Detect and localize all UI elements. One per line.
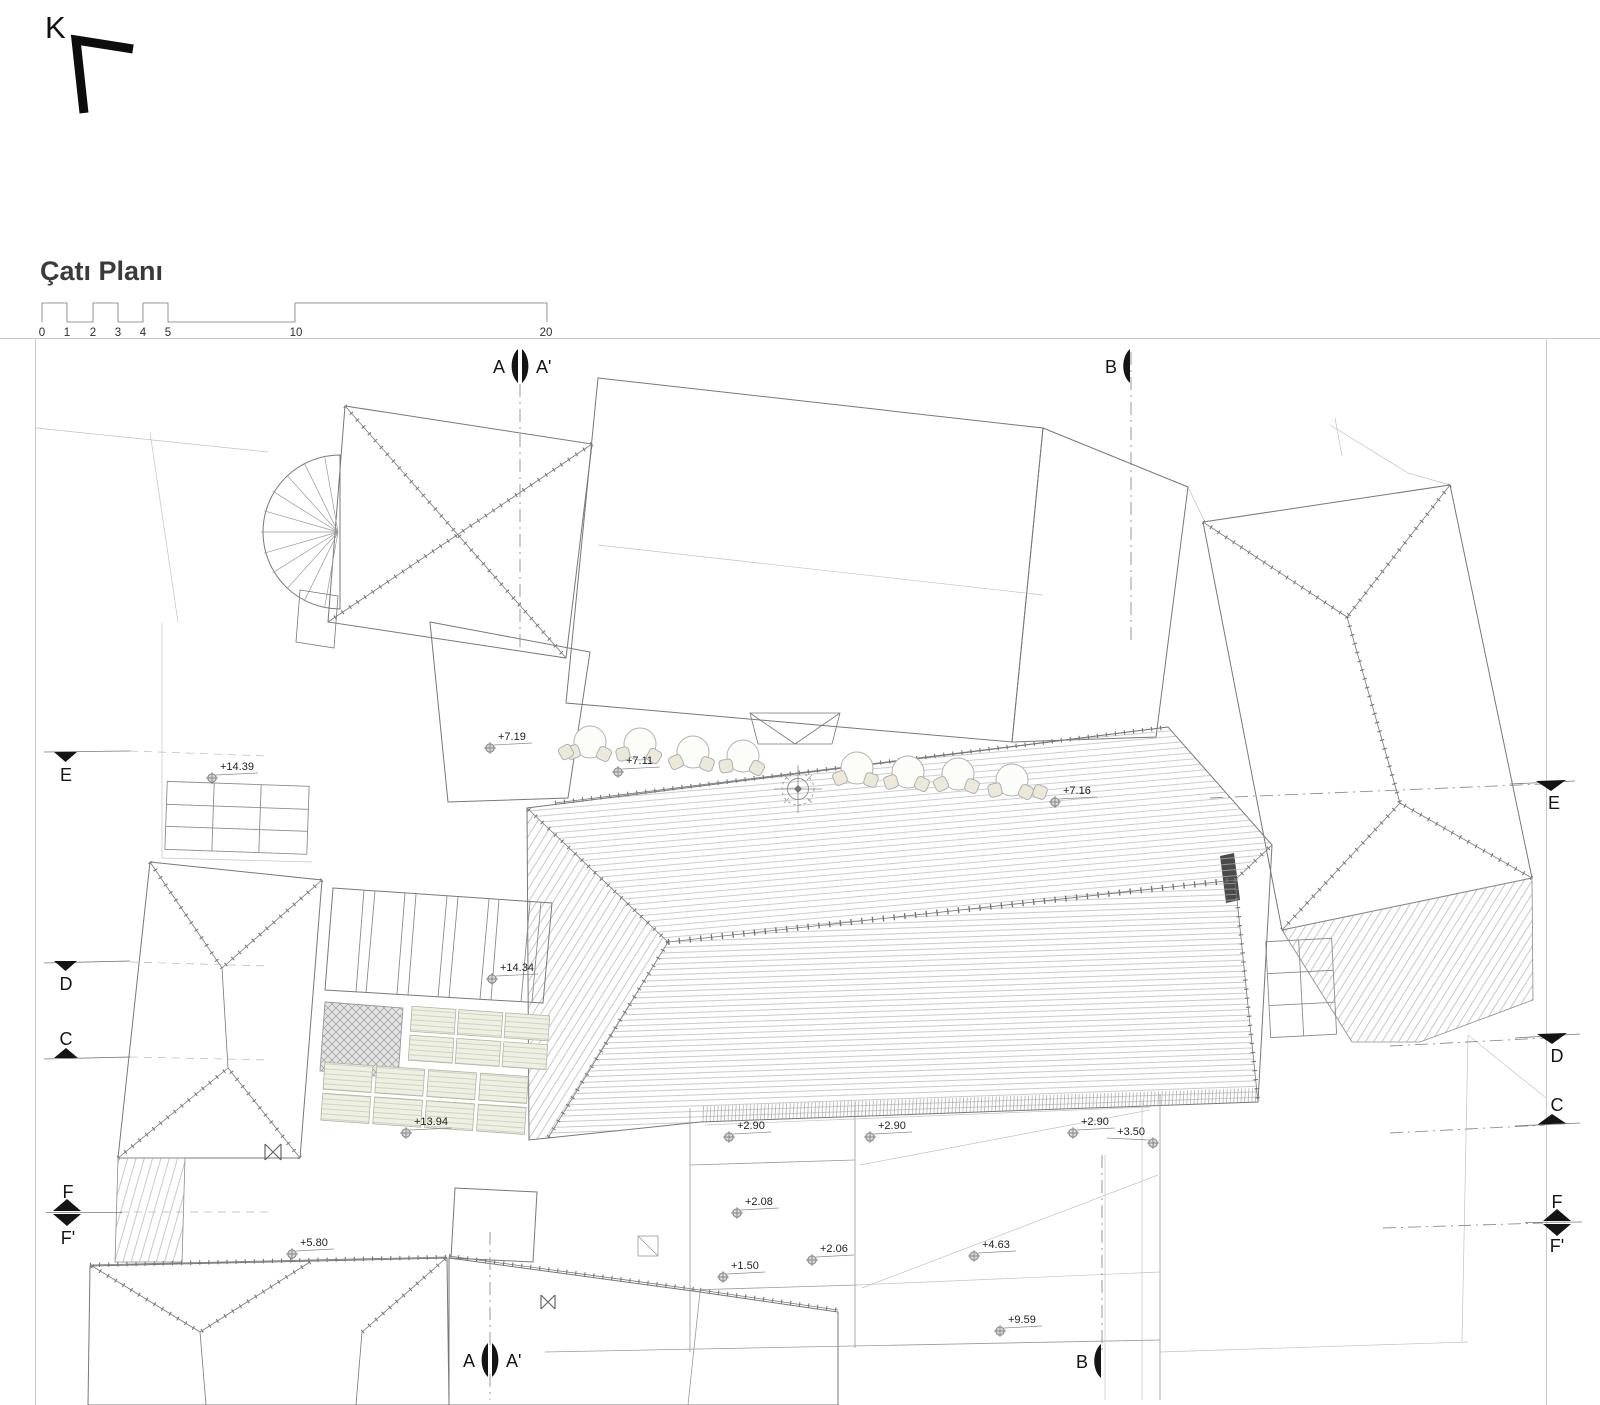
elevation-marker: +3.50 [1107,1126,1159,1149]
section-label-a-prime: A' [536,357,551,377]
svg-text:+9.59: +9.59 [1008,1314,1036,1326]
svg-text:+2.90: +2.90 [878,1120,906,1132]
section-label-b: B [1076,1352,1088,1372]
scale-tick-label: 0 [39,327,45,339]
roof-drain-symbol [265,1144,555,1309]
section-line-e-right [1210,784,1543,798]
section-label-b: B [1105,357,1117,377]
svg-text:+2.90: +2.90 [1081,1116,1109,1128]
elevation-marker: +9.59 [994,1314,1042,1337]
section-marker-f-left: F F' [46,1182,122,1248]
scale-tick-label: 1 [64,327,70,339]
section-label-a: A [493,357,505,377]
east-pavilion-roof [1203,485,1533,1042]
svg-text:+7.11: +7.11 [626,755,653,767]
scale-tick-label: 2 [90,327,96,339]
section-line-f-right [1383,1223,1543,1228]
svg-text:+2.90: +2.90 [737,1120,765,1132]
stair-strip-upper [430,622,590,802]
west-hip-roof [115,862,322,1262]
section-label-d: D [1551,1046,1564,1066]
section-label-c: C [60,1029,73,1049]
section-line-d-left [130,962,268,966]
north-arrow-icon: K [45,10,133,113]
section-marker-f-right: F F' [1525,1192,1582,1256]
section-label-d: D [60,974,73,994]
north-hall-roof [566,378,1188,744]
svg-text:+2.08: +2.08 [745,1196,773,1208]
elevation-marker: +14.39 [206,761,258,784]
elevation-marker: +2.08 [731,1196,779,1219]
plan-title: Çatı Planı [40,256,163,286]
svg-text:+7.16: +7.16 [1063,785,1091,797]
section-label-c: C [1551,1095,1564,1115]
svg-text:+3.50: +3.50 [1117,1126,1145,1138]
section-marker-c-left: C [44,1029,130,1059]
terrace-grid [165,781,309,854]
stair-strip-lower [451,1188,537,1262]
scale-tick-label: 20 [540,327,553,339]
north-label: K [45,10,66,45]
section-marker-b-top: B [1105,349,1130,383]
section-marker-c-right: C [1515,1095,1580,1126]
scale-tick-label: 10 [290,327,303,339]
roof-plan-sheet: A A' B A A' B E E D D C C [0,0,1600,1405]
elevation-marker: +2.90 [723,1120,771,1143]
elevation-marker: +2.90 [1067,1116,1115,1139]
svg-text:+14.34: +14.34 [500,962,534,974]
section-label-e: E [60,765,72,785]
svg-text:+1.50: +1.50 [731,1260,759,1272]
svg-text:+14.39: +14.39 [220,761,254,773]
bottom-center-roof [449,1256,838,1405]
section-label-a-prime: A' [506,1351,521,1371]
section-marker-d-right: D [1515,1033,1580,1066]
top-left-hip-roof [328,406,592,658]
scale-tick-label: 3 [115,327,121,339]
svg-text:+4.63: +4.63 [982,1239,1010,1251]
elevation-marker: +2.06 [806,1243,854,1266]
svg-text:+13.94: +13.94 [414,1116,448,1128]
roof-plan-canvas: A A' B A A' B E E D D C C [0,0,1600,1405]
elevation-marker: +5.80 [286,1237,334,1260]
section-marker-a-top: A A' [493,349,551,383]
bottom-left-roof [88,1257,449,1405]
elevation-marker: +1.50 [717,1260,765,1283]
section-line-c-right [1390,1125,1545,1133]
section-marker-e-left: E [44,751,130,785]
scale-bar: 0 1 2 3 4 5 10 20 [39,303,553,339]
section-marker-d-left: D [44,961,130,994]
section-line-e-left [130,751,268,756]
scale-tick-label: 4 [140,327,147,339]
section-label-a: A [463,1351,475,1371]
section-marker-a-bottom: A A' [463,1343,521,1377]
section-label-f-prime: F' [61,1228,75,1248]
section-line-c-left [130,1057,268,1060]
section-label-f: F [63,1182,74,1202]
section-label-e: E [1548,793,1560,813]
central-main-roof [527,727,1272,1140]
svg-text:+7.19: +7.19 [498,731,526,743]
svg-text:+5.80: +5.80 [300,1237,328,1249]
scale-tick-label: 5 [165,327,171,339]
section-label-f-prime: F' [1550,1236,1564,1256]
section-marker-b-bottom: B [1076,1344,1101,1378]
svg-text:+2.06: +2.06 [820,1243,848,1255]
elevation-marker: +7.19 [484,731,532,754]
skylight-rails [325,888,552,1003]
lower-floor-room-lines [545,1094,1160,1400]
elevation-marker: +4.63 [968,1239,1016,1262]
elevation-marker: +2.90 [864,1120,912,1143]
roof-notch [750,713,840,744]
